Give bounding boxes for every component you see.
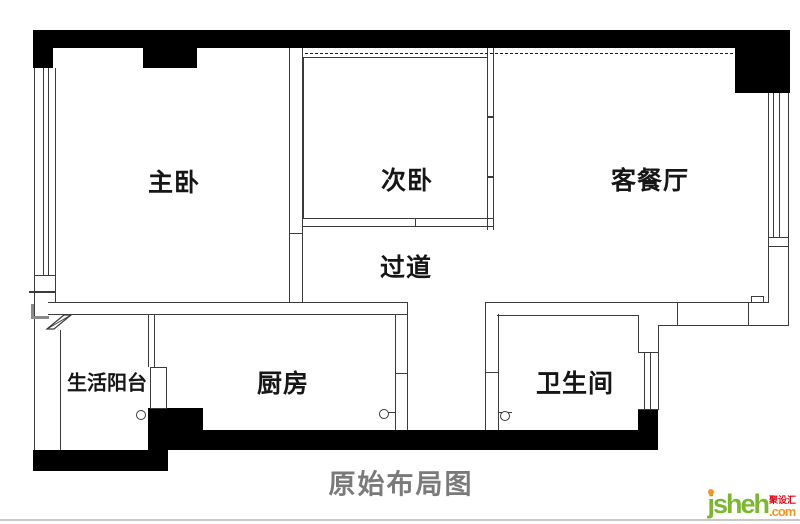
page-bottom-divider (0, 519, 800, 521)
balcony-inner-line (60, 330, 61, 450)
wall-bath-window-block (638, 410, 658, 430)
left-window-line (48, 68, 49, 275)
label-bathroom: 卫生间 (536, 364, 614, 400)
bath-window-line (650, 352, 651, 410)
second-bedroom-left-line (303, 57, 304, 218)
bath-window-cap (638, 352, 659, 353)
right-wall-inner-line (768, 93, 769, 303)
living-south-wall-divider (748, 302, 749, 326)
second-bedroom-south-wall-line (302, 218, 494, 219)
left-window-inner-line (55, 68, 56, 302)
bath-west-wall-tick (485, 372, 499, 373)
balcony-fixture-circle (136, 410, 146, 420)
kitchen-east-wall-line (407, 302, 408, 430)
left-window-cap (29, 291, 56, 293)
label-kitchen: 厨房 (257, 364, 309, 400)
wall-bottom-main (148, 430, 658, 450)
kitchen-west-wall-line (154, 314, 155, 367)
hall-south-wall-top (48, 302, 407, 303)
plan-caption: 原始布局图 (329, 463, 474, 502)
right-window-sill (768, 246, 789, 247)
logo-brand-text: jsheh (707, 491, 768, 518)
wall-top-pier (143, 48, 197, 68)
balcony-door-icon (44, 311, 74, 333)
wall-top-right-block (735, 48, 790, 93)
left-window-sill (34, 275, 56, 276)
hall-south-wall-bottom (48, 314, 407, 315)
right-window-line (779, 93, 780, 237)
left-window-line (43, 68, 44, 275)
living-south-wall-divider (677, 302, 678, 326)
second-bedroom-top-line (303, 57, 487, 58)
wall-top-right (735, 30, 790, 48)
living-south-wall-notch (751, 296, 764, 303)
wall-balcony-bottom (33, 450, 168, 471)
bath-window-cap (638, 409, 659, 410)
wall-kitchen-step (148, 408, 203, 430)
label-utility-balcony: 生活阳台 (67, 367, 147, 396)
living-south-wall-top (485, 302, 769, 303)
right-window-line (773, 93, 774, 237)
second-bedroom-east-wall-line (487, 48, 488, 230)
floor-plan: 主卧 次卧 客餐厅 过道 厨房 卫生间 生活阳台 原始布局图 jsheh 聚设汇… (0, 0, 800, 524)
bath-interior-east-line (638, 315, 639, 353)
kitchen-east-wall-tick (395, 373, 408, 374)
wall-top (33, 30, 735, 48)
bath-window-line (644, 352, 645, 410)
second-bedroom-south-wall-tick (415, 218, 416, 227)
master-east-wall-line (289, 48, 290, 302)
right-window-sill (768, 237, 789, 238)
logo-tld-text: .com (769, 505, 795, 518)
second-bedroom-east-wall-line (493, 48, 494, 230)
second-bedroom-south-wall-line (302, 226, 494, 227)
bath-window-outer-line (658, 325, 659, 410)
kitchen-door-leaf (150, 367, 167, 409)
right-wall-outer-line (788, 93, 789, 326)
bath-interior-top-line (497, 315, 639, 316)
second-bedroom-east-wall-tick (487, 176, 494, 178)
label-hallway: 过道 (380, 248, 432, 284)
kitchen-east-wall-line (395, 314, 396, 430)
kitchen-west-wall-line (148, 314, 149, 367)
bath-fixture-circle (500, 411, 510, 421)
label-master-bedroom: 主卧 (148, 163, 200, 199)
bath-west-wall-line (485, 302, 486, 430)
watermark-logo: jsheh 聚设汇 .com (707, 491, 796, 518)
left-wall-line (34, 68, 35, 450)
dashed-bay-line (305, 53, 733, 54)
second-bedroom-east-wall-tick (487, 116, 494, 118)
label-living-dining: 客餐厅 (611, 161, 689, 197)
kitchen-fixture-circle (379, 409, 389, 419)
label-second-bedroom: 次卧 (381, 161, 433, 197)
wall-top-left-block (33, 48, 53, 68)
master-east-wall-tick (289, 233, 303, 234)
